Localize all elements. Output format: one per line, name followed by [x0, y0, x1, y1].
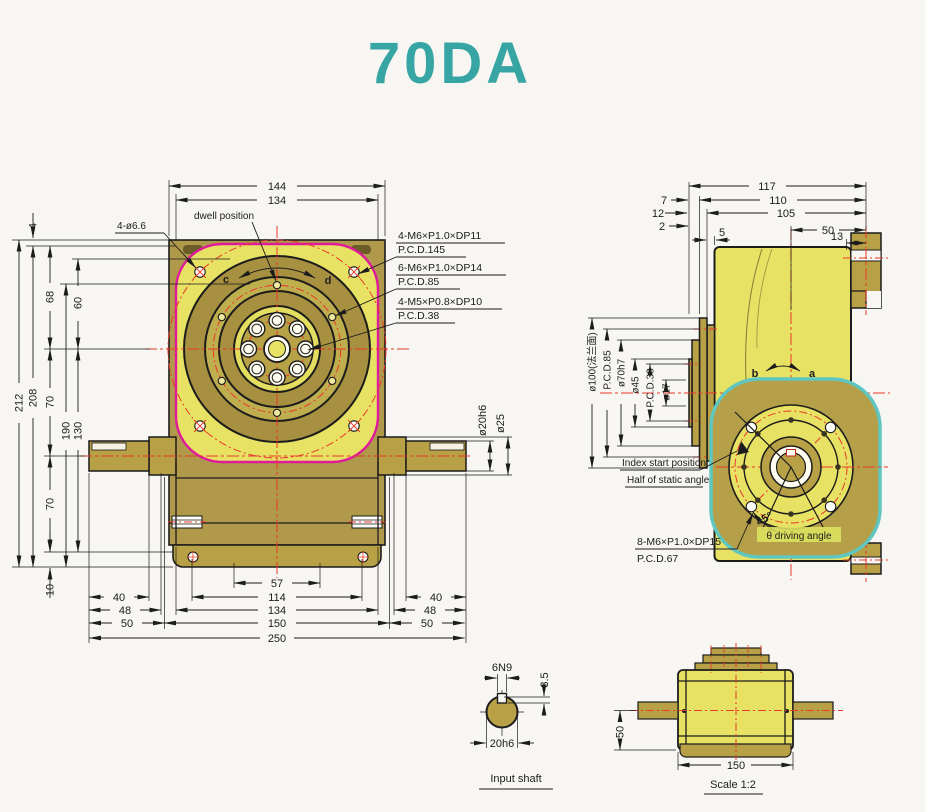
- dim-o20h6: ø20h6: [477, 405, 489, 436]
- dim-57: 57: [271, 578, 283, 590]
- dim-12: 12: [652, 208, 664, 220]
- dim-o70h7: ø70h7: [617, 358, 628, 387]
- spec3-line1: 4-M5×P0.8×DP10: [398, 296, 482, 308]
- dim-right50: 50: [421, 618, 433, 630]
- dim-110: 110: [769, 195, 787, 207]
- dim-13: 13: [831, 231, 843, 243]
- page-title: 70DA: [0, 30, 900, 97]
- dim-left40: 40: [113, 592, 125, 604]
- dim-70a: 70: [45, 396, 57, 408]
- scale-view: 50 150 Scale 1:2: [614, 643, 843, 794]
- dim-2: 2: [659, 221, 665, 233]
- spec2-line1: 6-M6×P1.0×DP14: [398, 262, 482, 274]
- dim-o100: ø100(法兰面): [586, 332, 599, 391]
- dim-208: 208: [28, 389, 40, 407]
- dim-70b: 70: [45, 498, 57, 510]
- index-start-text: Index start position: [622, 458, 706, 469]
- corner-hole-label: 4-ø6.6: [117, 221, 146, 232]
- dim-4: 4: [28, 223, 40, 229]
- dim-right40: 40: [430, 592, 442, 604]
- dim-o45: ø45: [631, 376, 642, 394]
- input-shaft-detail: 6N9 3.5 20h6 Input shaft: [470, 662, 553, 789]
- driving-angle-label: θ driving angle: [766, 531, 831, 542]
- base-slot-left: [168, 516, 206, 528]
- spec2-line2: P.C.D.85: [398, 276, 439, 288]
- dim-10: 10: [45, 584, 57, 596]
- side-spec-line1: 8-M6×P1.0×DP15: [637, 536, 721, 548]
- dim-pcd85-side: P.C.D.85: [603, 350, 614, 390]
- keyway: [498, 694, 507, 704]
- half-static-text: Half of static angle: [627, 475, 710, 486]
- dwell-label: dwell position: [194, 211, 254, 222]
- dim-7: 7: [661, 195, 667, 207]
- dim-114: 114: [268, 592, 286, 604]
- spec1-line2: P.C.D.145: [398, 244, 445, 256]
- input-shaft-caption: Input shaft: [490, 773, 541, 785]
- hub-bolt-holes: [241, 313, 314, 386]
- dim-130: 130: [73, 422, 85, 440]
- dim-6n9: 6N9: [492, 662, 512, 674]
- dim-60: 60: [73, 297, 85, 309]
- dim-o25: ø25: [495, 414, 507, 433]
- spec3-line2: P.C.D.38: [398, 310, 439, 322]
- dim-150: 150: [268, 618, 286, 630]
- dim-190: 190: [61, 422, 73, 440]
- bottom-flange-view: 45° θ driving angle: [711, 379, 888, 557]
- dim-left48: 48: [119, 605, 131, 617]
- spec1-line1: 4-M6×P1.0×DP11: [398, 230, 481, 242]
- front-view: c d dwell position 4-ø6.6 4-M6×P1.0×DP11…: [12, 180, 512, 645]
- base-slot-right: [348, 516, 386, 528]
- scale-caption: Scale 1:2: [710, 779, 756, 791]
- dim-250: 250: [268, 633, 286, 645]
- dim-o17: ø17: [662, 383, 673, 401]
- dim-right48: 48: [424, 605, 436, 617]
- dim-68: 68: [45, 291, 57, 303]
- dim-212: 212: [14, 394, 26, 412]
- technical-drawing: c d dwell position 4-ø6.6 4-M6×P1.0×DP11…: [0, 0, 925, 812]
- rotate-label-d: d: [325, 275, 332, 287]
- side-view: b a: [586, 181, 891, 582]
- side-spec-line2: P.C.D.67: [637, 553, 678, 565]
- dim-left50: 50: [121, 618, 133, 630]
- dim-pcd38-side: P.C.D.38: [646, 368, 657, 408]
- dim-117: 117: [758, 181, 776, 193]
- dim-3-5: 3.5: [539, 672, 551, 687]
- drawing-page: 70DA: [0, 0, 925, 812]
- dim-134-bottom: 134: [268, 605, 286, 617]
- dim-105: 105: [777, 208, 795, 220]
- dim-144: 144: [268, 181, 286, 193]
- dim-scale-150: 150: [727, 760, 745, 772]
- dim-5: 5: [719, 227, 725, 239]
- dim-scale-50: 50: [615, 726, 627, 738]
- dim-134-top: 134: [268, 195, 286, 207]
- dim-20h6: 20h6: [490, 738, 514, 750]
